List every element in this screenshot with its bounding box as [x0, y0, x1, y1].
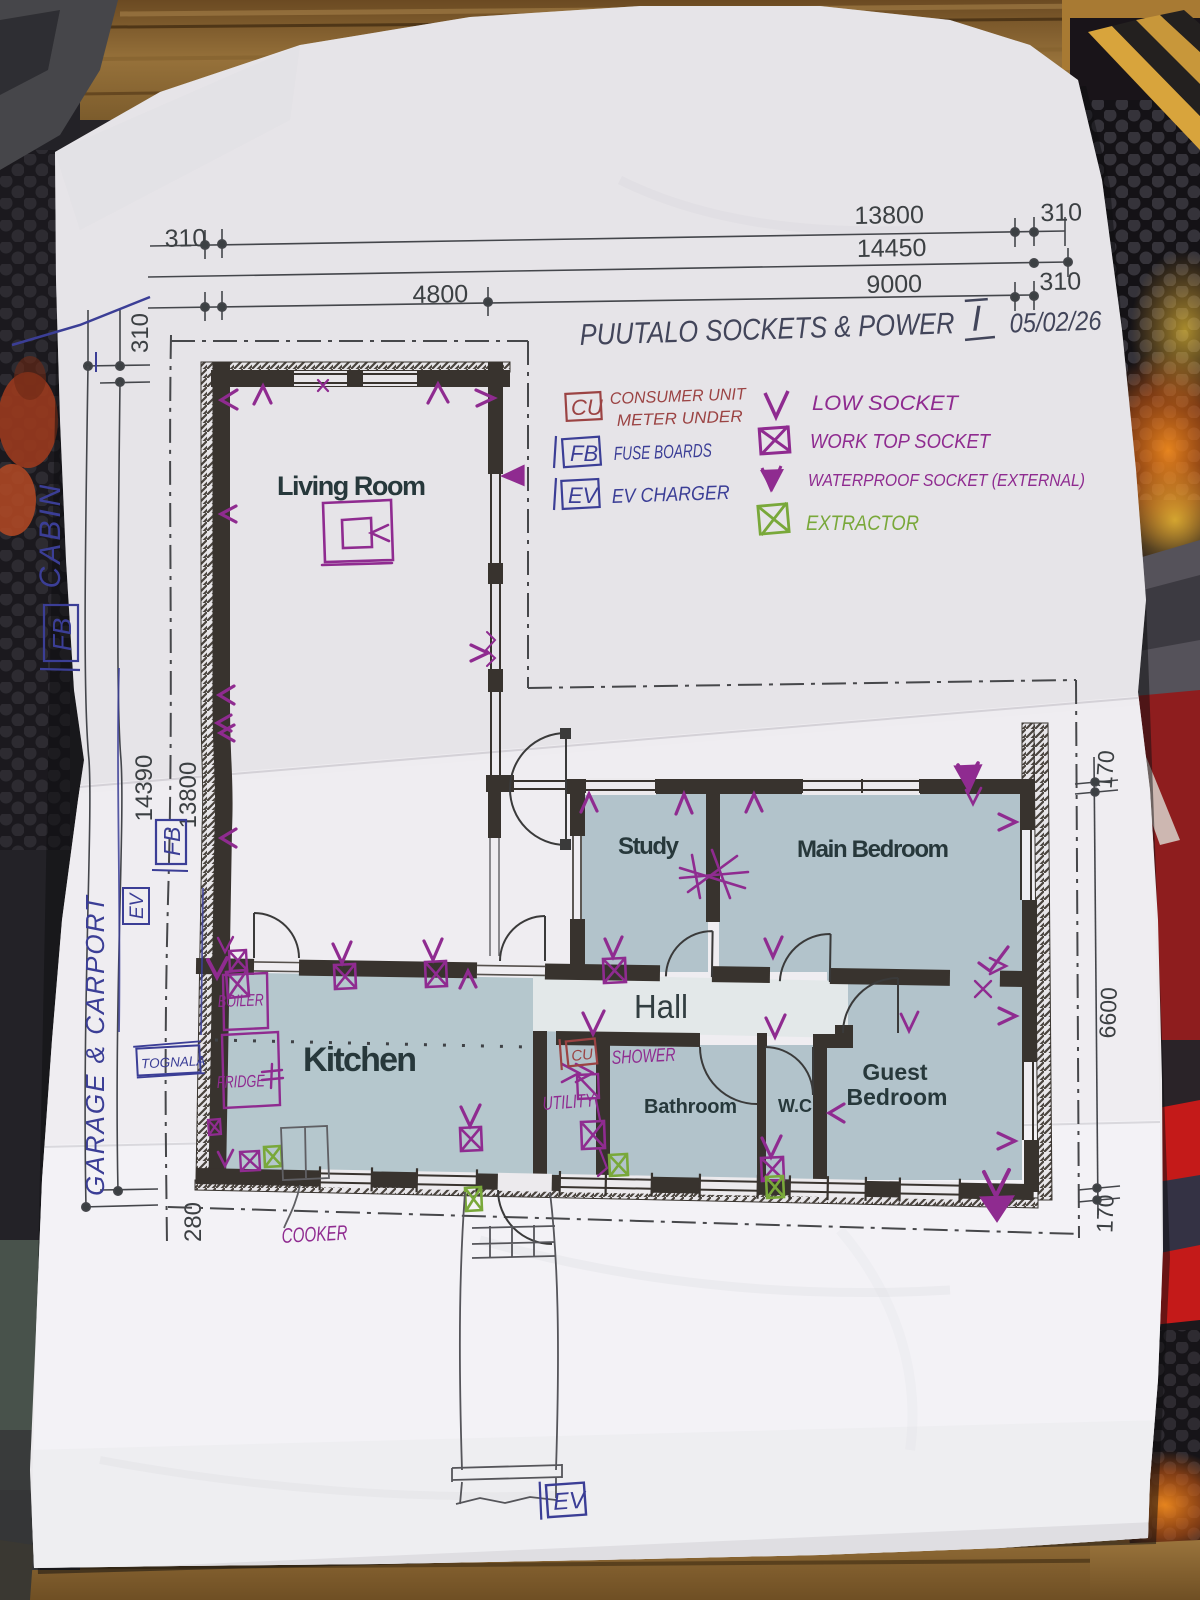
- svg-text:FRIDGE: FRIDGE: [216, 1071, 265, 1092]
- svg-text:GARAGE & CARPORT: GARAGE & CARPORT: [80, 894, 110, 1196]
- svg-text:CU: CU: [571, 1046, 594, 1065]
- svg-text:14390: 14390: [131, 755, 158, 822]
- svg-text:Living Room: Living Room: [277, 471, 426, 501]
- svg-text:FB: FB: [159, 827, 185, 856]
- svg-text:9000: 9000: [866, 270, 922, 299]
- svg-text:14450: 14450: [857, 234, 927, 263]
- svg-text:6600: 6600: [1094, 987, 1122, 1039]
- svg-text:EV: EV: [568, 483, 600, 508]
- svg-text:310: 310: [127, 313, 154, 353]
- svg-text:BOILER: BOILER: [217, 990, 264, 1011]
- svg-text:CABIN: CABIN: [34, 482, 67, 589]
- svg-text:Main Bedroom: Main Bedroom: [797, 836, 949, 863]
- svg-text:UTILITY: UTILITY: [542, 1090, 596, 1115]
- svg-text:310: 310: [1039, 267, 1081, 296]
- svg-text:FB: FB: [570, 441, 598, 466]
- svg-text:CU: CU: [571, 395, 603, 420]
- svg-text:170: 170: [1091, 1194, 1118, 1233]
- svg-text:Kitchen: Kitchen: [303, 1041, 417, 1079]
- svg-text:EV CHARGER: EV CHARGER: [611, 482, 730, 508]
- svg-text:Bedroom: Bedroom: [847, 1084, 948, 1110]
- svg-text:WATERPROOF SOCKET (EXTERNAL): WATERPROOF SOCKET (EXTERNAL): [808, 470, 1085, 490]
- svg-text:310: 310: [1040, 198, 1082, 227]
- svg-text:Study: Study: [618, 833, 680, 860]
- svg-text:W.C: W.C: [778, 1096, 812, 1116]
- svg-text:310: 310: [164, 224, 206, 253]
- svg-text:4800: 4800: [412, 280, 468, 309]
- svg-text:Guest: Guest: [862, 1059, 928, 1085]
- svg-text:13800: 13800: [854, 201, 924, 230]
- svg-text:EXTRACTOR: EXTRACTOR: [806, 512, 919, 535]
- svg-text:LOW SOCKET: LOW SOCKET: [812, 392, 960, 415]
- svg-text:Bathroom: Bathroom: [644, 1096, 737, 1118]
- svg-text:COOKER: COOKER: [281, 1222, 348, 1248]
- svg-text:Hall: Hall: [634, 988, 688, 1025]
- svg-text:WORK TOP SOCKET: WORK TOP SOCKET: [810, 431, 992, 453]
- svg-text:EV: EV: [552, 1486, 588, 1515]
- svg-text:05/02/26: 05/02/26: [1009, 306, 1103, 339]
- svg-text:SHOWER: SHOWER: [611, 1045, 676, 1069]
- svg-text:EV: EV: [127, 891, 148, 919]
- svg-text:FUSE BOARDS: FUSE BOARDS: [613, 441, 712, 465]
- svg-text:FB: FB: [47, 618, 77, 651]
- svg-text:170: 170: [1091, 749, 1120, 789]
- svg-text:I: I: [971, 297, 982, 338]
- svg-text:13800: 13800: [175, 762, 202, 829]
